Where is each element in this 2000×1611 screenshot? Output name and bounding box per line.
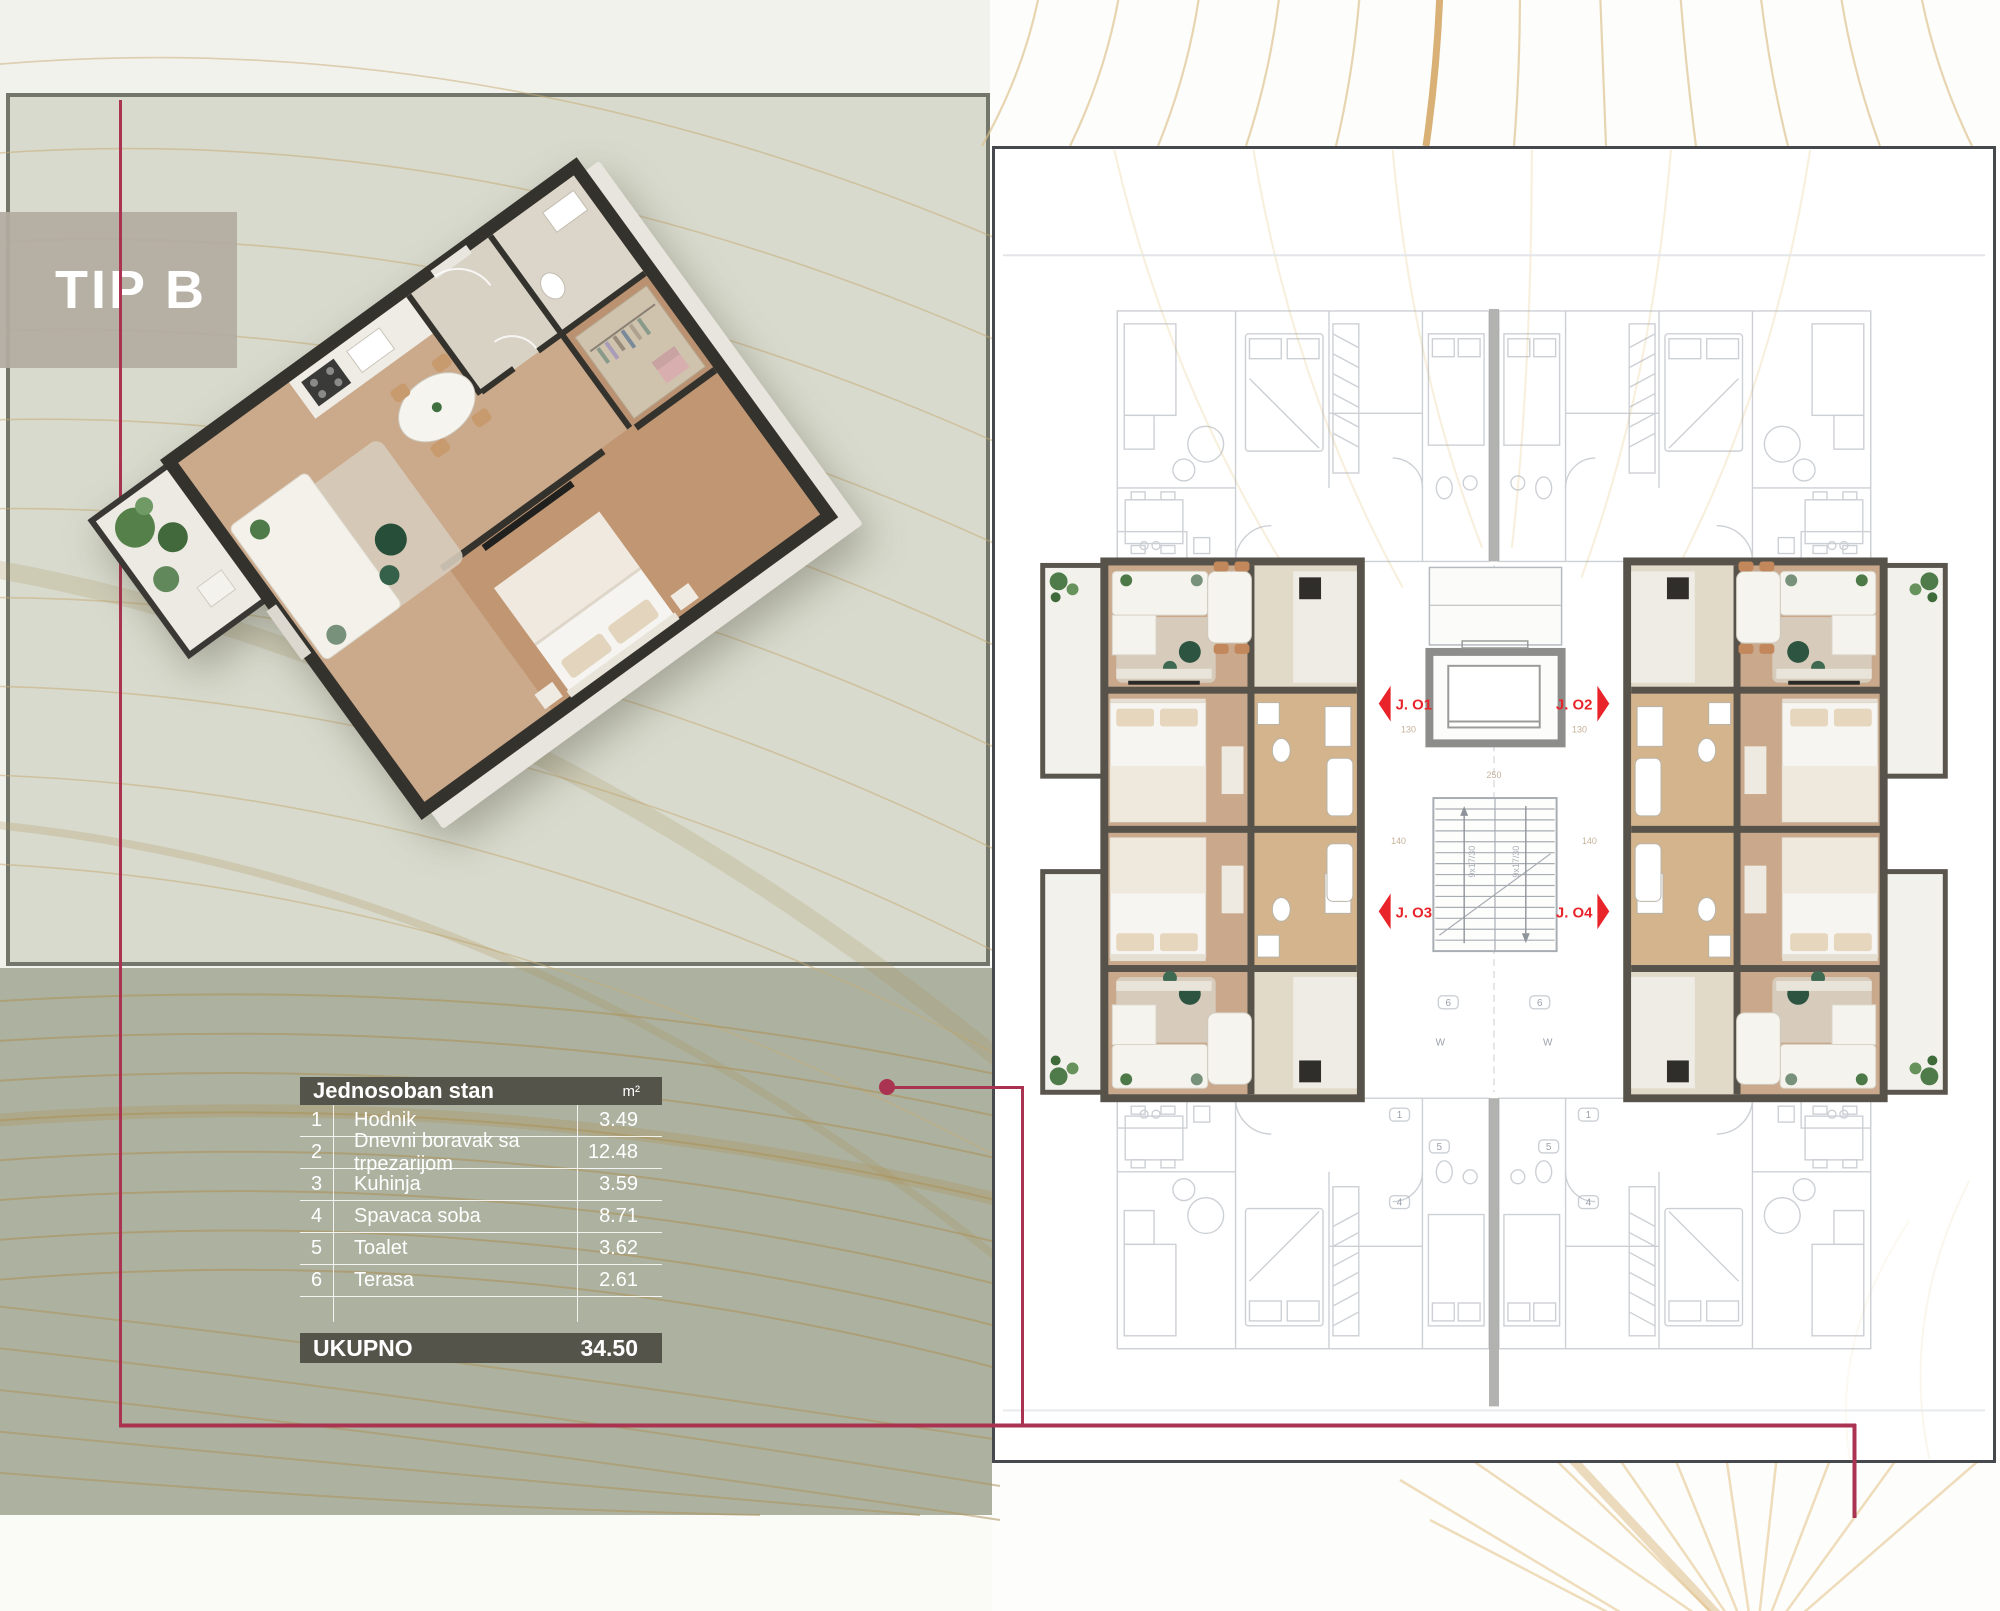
total-value: 34.50: [580, 1335, 638, 1362]
svg-text:4: 4: [1586, 1198, 1592, 1209]
right-arrow-icon: [1597, 893, 1609, 929]
svg-text:5: 5: [1437, 1142, 1443, 1153]
column-separator: [577, 1105, 578, 1322]
column-separator: [333, 1105, 334, 1322]
dim-label: 130: [1572, 724, 1587, 734]
room-name: Dnevni boravak sa trpezarijom: [333, 1130, 577, 1176]
area-table: Jednosoban stan m² 1Hodnik3.492Dnevni bo…: [300, 1077, 662, 1363]
svg-text:6: 6: [1446, 998, 1452, 1009]
svg-text:1: 1: [1397, 1110, 1403, 1121]
room-area: 3.59: [577, 1173, 662, 1196]
row-number: 2: [300, 1141, 333, 1164]
row-number: 3: [300, 1173, 333, 1196]
svg-text:J. O1: J. O1: [1396, 698, 1432, 714]
area-table-total: UKUPNO 34.50: [300, 1333, 662, 1363]
table-title: Jednosoban stan: [313, 1078, 494, 1104]
left-arrow-icon: [1379, 893, 1391, 929]
table-unit-header: m²: [623, 1083, 641, 1100]
right-arrow-icon: [1597, 686, 1609, 722]
row-number: 6: [300, 1269, 333, 1292]
dim-label: 250: [1487, 770, 1502, 780]
dim-label: 130: [1401, 724, 1416, 734]
total-label: UKUPNO: [313, 1335, 413, 1362]
svg-text:6: 6: [1537, 998, 1543, 1009]
row-number: 4: [300, 1205, 333, 1228]
svg-text:J. O3: J. O3: [1396, 905, 1432, 921]
svg-text:W: W: [1436, 1038, 1446, 1049]
apartment-3d-render: [60, 110, 940, 890]
room-name: Terasa: [333, 1269, 577, 1292]
stair-label: 9x17/30: [1467, 846, 1477, 878]
table-row: 3Kuhinja3.59: [300, 1169, 662, 1201]
area-table-rows: 1Hodnik3.492Dnevni boravak sa trpezarijo…: [300, 1105, 662, 1297]
table-row: 4Spavaca soba8.71: [300, 1201, 662, 1233]
row-number: 5: [300, 1237, 333, 1260]
stair-label: 9x17/30: [1511, 846, 1521, 878]
left-arrow-icon: [1379, 686, 1391, 722]
row-number: 1: [300, 1109, 333, 1132]
room-area: 3.62: [577, 1237, 662, 1260]
unit-marker-j-o1: J. O1: [1379, 686, 1432, 722]
bottom-strip: [0, 1515, 992, 1611]
svg-text:5: 5: [1546, 1142, 1552, 1153]
room-name: Kuhinja: [333, 1173, 577, 1196]
central-core: 9x17/30 9x17/30: [1429, 565, 1561, 1092]
room-area: 2.61: [577, 1269, 662, 1292]
table-row: 6Terasa2.61: [300, 1265, 662, 1297]
building-floor-plan-panel: 9x17/30 9x17/30 J. O1 J. O2 J. O3 J. O4 …: [992, 146, 1996, 1463]
svg-text:1: 1: [1586, 1110, 1592, 1121]
building-floor-plan: 9x17/30 9x17/30 J. O1 J. O2 J. O3 J. O4 …: [995, 149, 1993, 1460]
unit-marker-j-o3: J. O3: [1379, 893, 1432, 929]
table-row: 5Toalet3.62: [300, 1233, 662, 1265]
room-area: 3.49: [577, 1109, 662, 1132]
dim-label: 140: [1391, 836, 1406, 846]
dim-label: 140: [1582, 836, 1597, 846]
room-name: Toalet: [333, 1237, 577, 1260]
table-row: 2Dnevni boravak sa trpezarijom12.48: [300, 1137, 662, 1169]
room-area: 12.48: [577, 1141, 662, 1164]
area-table-header: Jednosoban stan m²: [300, 1077, 662, 1105]
svg-text:4: 4: [1397, 1198, 1403, 1209]
room-name: Spavaca soba: [333, 1205, 577, 1228]
svg-text:J. O4: J. O4: [1556, 905, 1593, 921]
unit-marker-j-o4: J. O4: [1556, 893, 1609, 929]
room-area: 8.71: [577, 1205, 662, 1228]
svg-text:W: W: [1543, 1038, 1553, 1049]
svg-text:J. O2: J. O2: [1556, 698, 1592, 714]
